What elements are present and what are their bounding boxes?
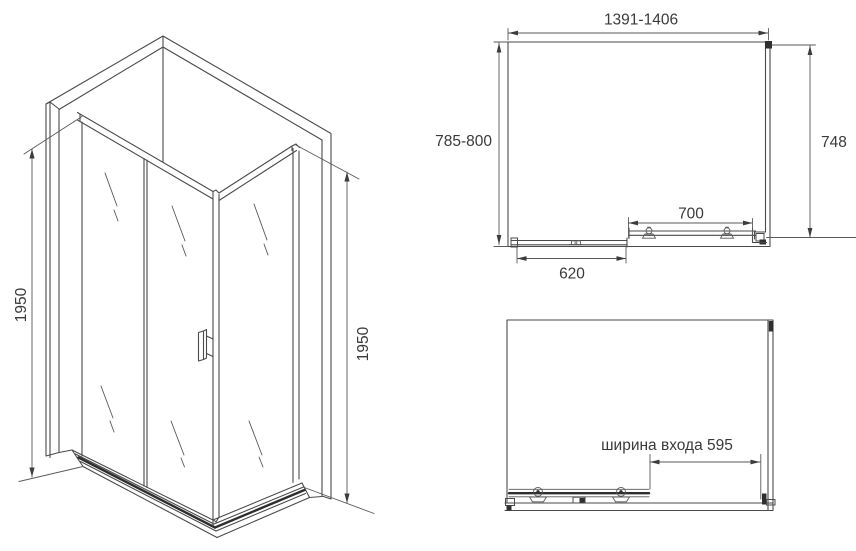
tray-side-edges xyxy=(213,483,322,538)
dimension-side-depth: 748 xyxy=(767,45,856,238)
right-wall-profile xyxy=(322,140,331,499)
overall-depth-lines xyxy=(494,42,508,247)
front-top-rail xyxy=(78,113,214,200)
door-stile-and-corner-post xyxy=(213,190,219,522)
left-wall-profile xyxy=(46,102,72,458)
wall-profiles xyxy=(46,102,331,499)
glass-panels xyxy=(82,122,299,522)
plan-sliding-panel xyxy=(629,227,767,242)
reflection-marks xyxy=(101,173,268,467)
door-travel-label: 700 xyxy=(678,206,704,223)
side-glass-edges xyxy=(293,149,299,483)
front-wall-profile-cap xyxy=(769,321,774,332)
plan-roller-left xyxy=(643,227,656,238)
entrance-width-label: ширина входа 595 xyxy=(601,437,733,454)
center-guide-fill xyxy=(580,498,585,503)
plan-wall-profile-cap xyxy=(765,41,772,49)
handle-arms xyxy=(207,336,214,357)
side-top-rail xyxy=(219,144,300,201)
overall-width-lines xyxy=(508,29,769,41)
back-top-rails xyxy=(46,36,331,162)
glass-reflections xyxy=(101,173,268,467)
door-handle xyxy=(199,330,214,362)
side-depth-label: 748 xyxy=(821,134,847,151)
overall-depth-label: 785-800 xyxy=(435,133,492,150)
dimension-fixed-panel: 620 xyxy=(517,248,626,283)
drawing-canvas: 1950 1950 xyxy=(0,0,856,551)
top-view: 1391-1406 785-800 748 700 620 xyxy=(435,12,856,283)
dimension-height-right: 1950 xyxy=(295,145,374,514)
technical-drawing: 1950 1950 xyxy=(0,0,856,551)
dimension-door-travel: 700 xyxy=(629,206,753,238)
front-door-rail xyxy=(509,487,649,503)
plan-fixed-panel xyxy=(511,238,627,247)
plan-roller-right xyxy=(721,227,734,238)
fixed-panel-end-cap xyxy=(511,238,518,247)
dimension-overall-depth: 785-800 xyxy=(435,42,507,247)
plan-outline xyxy=(508,42,770,247)
dimension-height-left: 1950 xyxy=(13,117,83,482)
fixed-panel-label: 620 xyxy=(559,266,585,283)
height-left-label: 1950 xyxy=(13,287,30,322)
entrance-width-lines xyxy=(650,455,761,500)
fixed-panel-bar xyxy=(511,238,627,247)
fixed-panel-lines xyxy=(517,248,626,264)
isometric-view: 1950 1950 xyxy=(13,36,374,538)
handle-bar xyxy=(199,330,207,362)
fixed-panel-mid-detail xyxy=(570,241,583,245)
overall-width-label: 1391-1406 xyxy=(604,12,678,29)
front-glass-edges xyxy=(82,122,147,488)
top-frame xyxy=(46,36,331,201)
shower-tray xyxy=(72,450,322,538)
height-right-label: 1950 xyxy=(355,326,372,361)
front-outline xyxy=(507,320,773,510)
front-bottom-sill xyxy=(505,503,773,511)
dimension-overall-width: 1391-1406 xyxy=(508,12,769,41)
tray-side-track xyxy=(215,490,305,528)
sliding-panel-bar xyxy=(629,228,767,243)
front-view: ширина входа 595 xyxy=(505,320,775,511)
